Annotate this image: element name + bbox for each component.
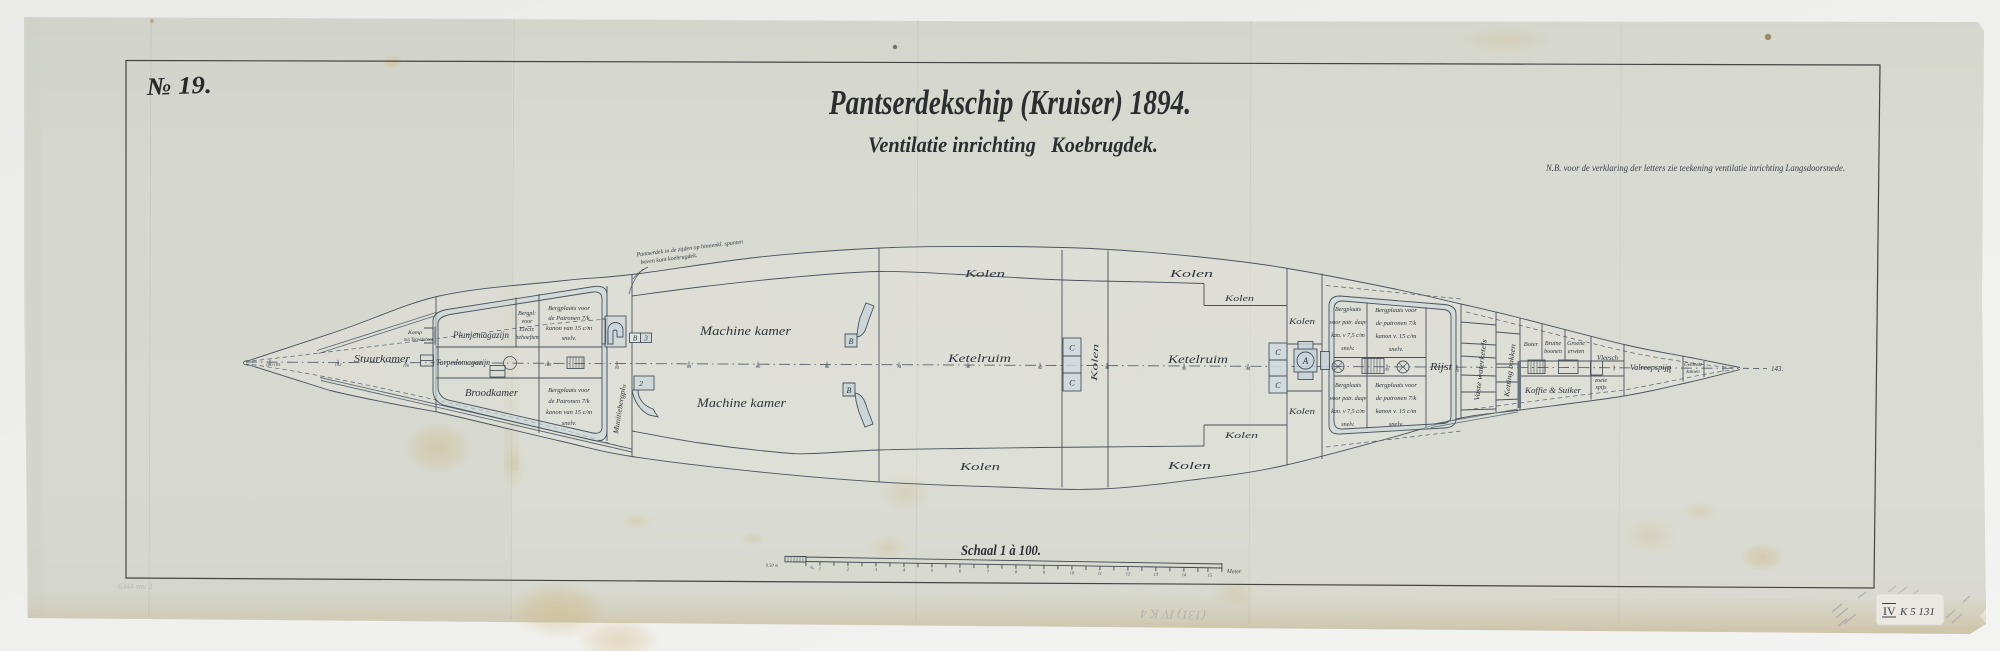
- svg-text:14: 14: [1182, 572, 1187, 577]
- svg-text:Kolen: Kolen: [1223, 430, 1258, 440]
- svg-text:(131) IV K 4: (131) IV K 4: [1140, 606, 1206, 623]
- svg-text:Kolen: Kolen: [958, 461, 1000, 473]
- svg-text:Ventilatie inrichting Koebru: Ventilatie inrichting Koebrugdek.: [868, 132, 1158, 157]
- svg-text:voor: voor: [522, 319, 534, 325]
- svg-text:№ 19.: № 19.: [145, 72, 212, 101]
- svg-text:Koffie & Suiker: Koffie & Suiker: [1524, 386, 1582, 395]
- svg-text:Valreepspijp: Valreepspijp: [1630, 363, 1671, 372]
- svg-text:Machine kamer: Machine kamer: [699, 323, 792, 338]
- svg-text:12: 12: [1126, 571, 1131, 576]
- svg-text:58: 58: [966, 364, 971, 369]
- svg-text:kan. v 7,5 c/m: kan. v 7,5 c/m: [1331, 333, 1365, 339]
- svg-text:voor patr. daqv: voor patr. daqv: [1330, 396, 1367, 402]
- svg-text:143.: 143.: [1771, 365, 1784, 373]
- svg-text:kanon van 15 c/m: kanon van 15 c/m: [546, 325, 592, 332]
- svg-text:Kolen: Kolen: [1168, 268, 1213, 280]
- svg-text:behoeften: behoeften: [515, 334, 538, 341]
- svg-text:kanon v. 15 c/m: kanon v. 15 c/m: [1376, 408, 1417, 415]
- svg-text:13: 13: [1154, 572, 1159, 577]
- svg-text:6344 mv 2: 6344 mv 2: [118, 582, 152, 591]
- svg-text:66: 66: [825, 364, 830, 369]
- svg-text:2: 2: [639, 379, 643, 388]
- svg-text:Bergplaats voor: Bergplaats voor: [548, 387, 590, 394]
- svg-text:10: 10: [1070, 570, 1075, 575]
- svg-text:erwten: erwten: [1568, 349, 1584, 355]
- svg-text:C: C: [1069, 378, 1075, 388]
- svg-text:180.185: 180.185: [266, 362, 281, 367]
- svg-text:Kolen: Kolen: [963, 268, 1005, 280]
- svg-text:Bergplaats voor: Bergplaats voor: [1375, 382, 1417, 389]
- svg-text:Kolen: Kolen: [1224, 293, 1254, 303]
- svg-text:Bergplaats voor: Bergplaats voor: [548, 305, 590, 312]
- svg-text:84: 84: [687, 364, 692, 369]
- svg-text:B: B: [849, 337, 854, 346]
- svg-text:snelv.: snelv.: [1341, 346, 1354, 352]
- svg-text:44: 44: [1246, 366, 1251, 371]
- svg-text:56: 56: [1105, 365, 1110, 370]
- svg-text:Kolen: Kolen: [1089, 343, 1100, 383]
- svg-text:Kolen: Kolen: [1166, 460, 1211, 472]
- svg-text:95: 95: [615, 365, 620, 370]
- svg-text:Rijst: Rijst: [1429, 362, 1452, 373]
- svg-text:%: %: [810, 565, 814, 570]
- svg-text:74: 74: [897, 364, 902, 369]
- svg-text:A: A: [1302, 356, 1309, 366]
- svg-text:Boter: Boter: [1524, 341, 1539, 348]
- svg-text:Ketelruim: Ketelruim: [1167, 352, 1229, 366]
- svg-text:Vleesch: Vleesch: [1597, 354, 1618, 362]
- svg-text:C: C: [1275, 347, 1281, 357]
- svg-text:Bergplaats voor: Bergplaats voor: [1375, 307, 1417, 314]
- svg-text:kan. v 7,5 c/m: kan. v 7,5 c/m: [1331, 409, 1365, 415]
- svg-text:0.50 m: 0.50 m: [766, 563, 779, 568]
- svg-text:Kolen: Kolen: [1288, 316, 1315, 326]
- svg-text:snelv.: snelv.: [1341, 422, 1354, 428]
- svg-text:Schaal 1 à 100.: Schaal 1 à 100.: [961, 543, 1041, 559]
- svg-text:Bergplaats: Bergplaats: [1335, 307, 1362, 313]
- svg-text:voor patr. daqv: voor patr. daqv: [1330, 320, 1367, 326]
- svg-text:C: C: [1275, 380, 1281, 390]
- svg-text:Pantserdekschip (Kruiser) 1894: Pantserdekschip (Kruiser) 1894.: [828, 83, 1191, 122]
- svg-text:50: 50: [1182, 366, 1187, 371]
- svg-text:boonen: boonen: [1544, 349, 1562, 355]
- svg-text:de Patronen 7/k: de Patronen 7/k: [548, 398, 589, 405]
- svg-text:11: 11: [1098, 571, 1102, 576]
- svg-text:N.B. voor de verklaring der le: N.B. voor de verklaring der letters zie …: [1545, 163, 1845, 173]
- svg-text:Torpedomagazijn: Torpedomagazijn: [436, 357, 490, 367]
- svg-text:C: C: [1069, 343, 1075, 353]
- svg-text:kanon van 15 c/m: kanon van 15 c/m: [546, 409, 592, 416]
- svg-text:Broodkamer: Broodkamer: [465, 388, 519, 399]
- svg-text:Bruine: Bruine: [1545, 341, 1562, 347]
- svg-text:Ketelruim: Ketelruim: [947, 351, 1012, 365]
- svg-text:de patronen 7/k: de patronen 7/k: [1376, 320, 1417, 327]
- svg-text:1: 1: [1722, 368, 1724, 373]
- svg-text:Electr.: Electr.: [518, 327, 535, 333]
- svg-text:katoen: katoen: [1686, 370, 1700, 375]
- svg-text:152: 152: [335, 362, 343, 367]
- svg-text:15: 15: [1208, 573, 1213, 578]
- svg-text:IV: IV: [1883, 604, 1896, 618]
- svg-text:zoete: zoete: [1594, 378, 1608, 384]
- svg-text:m/s Torpedoboot: m/s Torpedoboot: [404, 338, 434, 343]
- svg-text:snelv.: snelv.: [1389, 346, 1404, 353]
- svg-text:Gebleekt: Gebleekt: [1684, 363, 1702, 368]
- svg-text:kanon v. 15 c/m: kanon v. 15 c/m: [1376, 333, 1417, 340]
- svg-text:snelv.: snelv.: [562, 420, 577, 427]
- svg-text:K 5 131: K 5 131: [1899, 606, 1935, 618]
- svg-text:spijs: spijs: [1595, 385, 1607, 391]
- svg-text:B: B: [847, 386, 852, 395]
- svg-text:Kamp: Kamp: [407, 331, 423, 336]
- svg-text:Bergplaats: Bergplaats: [1335, 383, 1362, 389]
- svg-text:Machine kamer: Machine kamer: [696, 395, 787, 410]
- svg-text:116: 116: [403, 363, 410, 368]
- svg-text:16: 16: [1455, 368, 1460, 373]
- svg-text:80: 80: [756, 364, 761, 369]
- svg-text:1: 1: [819, 566, 821, 571]
- svg-text:snelv.: snelv.: [562, 335, 577, 342]
- svg-text:snelv.: snelv.: [1389, 421, 1404, 428]
- svg-text:B: B: [633, 334, 638, 343]
- svg-text:52: 52: [1038, 365, 1043, 370]
- svg-text:Bergpl:: Bergpl:: [518, 311, 536, 317]
- svg-text:Plunjemagazijn: Plunjemagazijn: [452, 331, 509, 341]
- svg-text:Meter.: Meter.: [1226, 569, 1242, 575]
- svg-text:3: 3: [643, 334, 648, 343]
- svg-text:de patronen 7/k: de patronen 7/k: [1376, 395, 1417, 402]
- svg-text:104: 104: [545, 362, 553, 367]
- svg-text:31: 31: [1385, 367, 1390, 372]
- svg-text:de Patronen 7/k: de Patronen 7/k: [548, 315, 589, 322]
- svg-text:Kolen: Kolen: [1288, 406, 1315, 416]
- svg-text:Groene: Groene: [1567, 341, 1585, 347]
